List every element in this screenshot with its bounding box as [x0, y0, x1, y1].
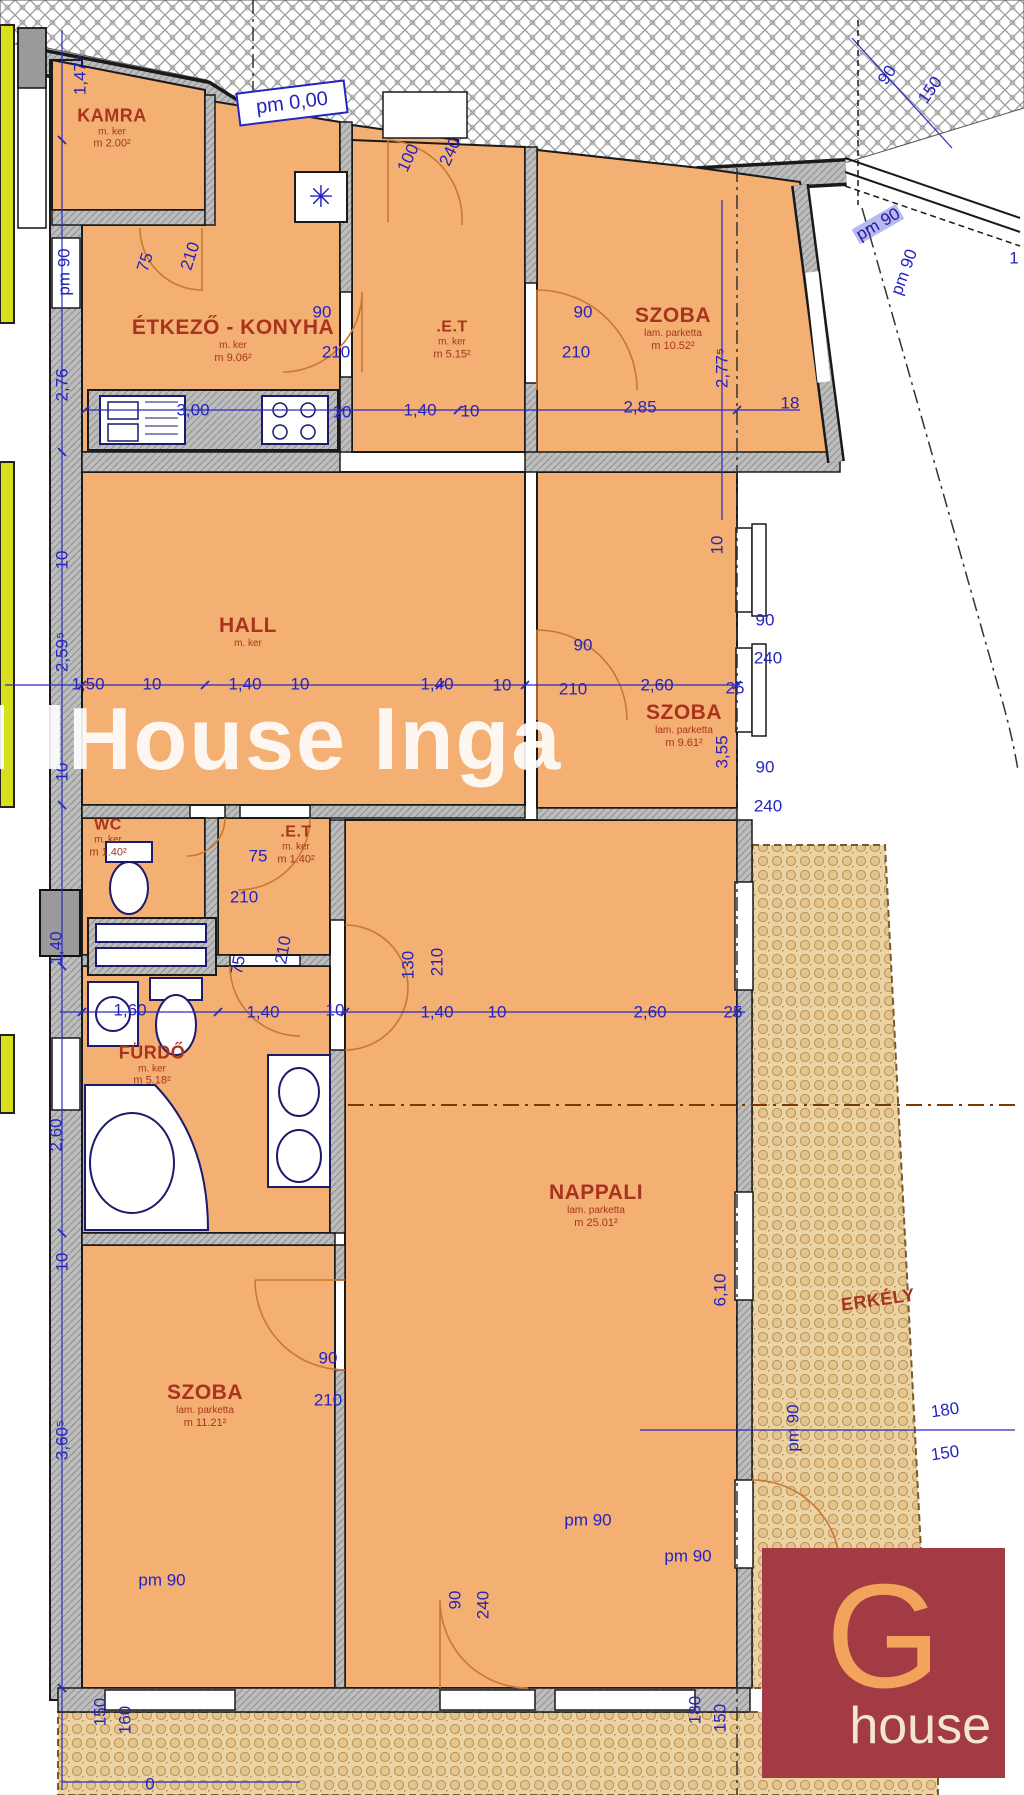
- room-name: SZOBA: [167, 1381, 243, 1405]
- dimension-label: 2,59⁵: [54, 632, 71, 672]
- dimension-label: 0: [145, 1776, 154, 1793]
- dimension-label: 2,76: [54, 368, 71, 401]
- room-area: m 5.18²: [119, 1075, 186, 1088]
- dimension-label: 180: [930, 1400, 960, 1421]
- room-name: ERKÉLY: [840, 1285, 917, 1316]
- dimension-label: 210: [272, 935, 294, 966]
- dimension-label: 210: [559, 681, 587, 698]
- logo-word: house: [849, 1700, 1005, 1752]
- room-label-hall: HALLm. ker: [219, 614, 277, 650]
- room-label-erkely: ERKÉLY: [840, 1285, 917, 1316]
- dimension-label: 90: [447, 1591, 464, 1610]
- dimension-label: 240: [436, 136, 463, 169]
- dimension-label: 240: [754, 650, 782, 667]
- dimension-label: 130: [400, 951, 417, 979]
- dimension-label: 1,47⁵: [72, 55, 89, 95]
- dimension-label: 75: [134, 250, 156, 273]
- dimension-label: 100: [394, 142, 421, 175]
- dimension-label: 3,00: [176, 402, 209, 419]
- room-floor-type: m. ker: [277, 842, 314, 854]
- dimension-label: 3,60⁵: [54, 1420, 71, 1460]
- agency-logo: G house: [762, 1548, 1005, 1778]
- dimension-label: 2,60: [48, 1118, 65, 1151]
- dimension-label: pm 90: [564, 1512, 611, 1529]
- dimension-label: pm 90: [888, 247, 920, 297]
- dimension-label: 2,85: [623, 399, 656, 416]
- room-name: SZOBA: [646, 701, 722, 725]
- dimension-label: 90: [319, 1350, 338, 1367]
- room-name: SZOBA: [635, 304, 711, 328]
- dimension-label: 6,10: [712, 1273, 729, 1306]
- room-floor-type: m. ker: [119, 1063, 186, 1075]
- dimension-label: 150: [92, 1698, 109, 1726]
- room-name: KAMRA: [77, 106, 147, 127]
- room-floor-type: m. ker: [77, 126, 147, 138]
- room-area: m 9.61²: [646, 737, 722, 750]
- dimension-label: 2,77⁵: [714, 348, 731, 388]
- dimension-label: 25: [726, 680, 745, 697]
- dimension-label: 10: [709, 536, 726, 555]
- dimension-label: 90: [574, 637, 593, 654]
- dimension-label: 2,60: [640, 677, 673, 694]
- dimension-label: 10: [461, 403, 480, 420]
- dimension-label: 1,40: [403, 402, 436, 419]
- dimension-label: 150: [930, 1443, 960, 1464]
- dimension-label: pm 90: [852, 204, 905, 244]
- dimension-label: 160: [117, 1706, 134, 1734]
- dimension-label: 150: [712, 1704, 729, 1732]
- labels-layer: 1,47⁵pm 902,76102,59⁵101,402,60103,60⁵07…: [0, 0, 1024, 1795]
- dimension-label: 210: [178, 240, 203, 272]
- room-floor-type: m. ker: [219, 638, 277, 650]
- room-floor-type: lam. parketta: [549, 1205, 643, 1217]
- dimension-label: 90: [756, 759, 775, 776]
- room-label-szoba-also: SZOBAlam. parkettam 11.21²: [167, 1381, 243, 1429]
- room-label-et-kozep: .E.Tm. kerm 1.40²: [277, 824, 314, 867]
- dimension-label: 1,40: [246, 1004, 279, 1021]
- dimension-label: pm 90: [785, 1404, 802, 1451]
- dimension-label: 75: [228, 954, 248, 976]
- room-label-furdo: FÜRDŐm. kerm 5.18²: [119, 1043, 186, 1088]
- dimension-label: 2,60: [633, 1004, 666, 1021]
- room-floor-type: m. ker: [433, 337, 470, 349]
- room-area: m 5.15²: [433, 349, 470, 362]
- room-label-nappali: NAPPALIlam. parkettam 25.01²: [549, 1181, 643, 1229]
- dimension-label: 210: [314, 1392, 342, 1409]
- logo-initial: G: [826, 1574, 941, 1700]
- room-name: NAPPALI: [549, 1181, 643, 1205]
- dimension-label: 90: [574, 304, 593, 321]
- room-area: m 25.01²: [549, 1217, 643, 1230]
- room-floor-type: lam. parketta: [646, 725, 722, 737]
- room-label-kamra: KAMRAm. kerm 2.00²: [77, 106, 147, 151]
- floorplan-canvas: ✳: [0, 0, 1024, 1795]
- dimension-label: 210: [429, 948, 446, 976]
- dimension-label: 210: [562, 344, 590, 361]
- room-area: m 2.00²: [77, 138, 147, 151]
- dimension-label: 10: [54, 551, 71, 570]
- room-name: HALL: [219, 614, 277, 638]
- room-area: m 9.06²: [132, 352, 334, 365]
- dimension-label: 1,40: [48, 931, 65, 964]
- room-floor-type: lam. parketta: [635, 328, 711, 340]
- dimension-label: pm 90: [138, 1572, 185, 1589]
- room-name: FÜRDŐ: [119, 1043, 186, 1064]
- dimension-label: 18: [781, 395, 800, 412]
- room-label-wc: WCm. kerm 1.40²: [89, 817, 126, 860]
- room-area: m 11.21²: [167, 1417, 243, 1430]
- room-name: .E.T: [433, 319, 470, 337]
- dimension-label: 1: [1009, 250, 1018, 267]
- dimension-label: 10: [326, 1002, 345, 1019]
- dimension-label: 1,60: [113, 1002, 146, 1019]
- dimension-label: 75: [249, 848, 268, 865]
- dimension-label: 240: [475, 1591, 492, 1619]
- dimension-label: 180: [687, 1696, 704, 1724]
- dimension-label: 10: [54, 1253, 71, 1272]
- dimension-label: pm 90: [664, 1548, 711, 1565]
- room-label-szoba-kozep: SZOBAlam. parkettam 9.61²: [646, 701, 722, 749]
- room-name: WC: [89, 817, 126, 835]
- room-name: ÉTKEZŐ - KONYHA: [132, 316, 334, 340]
- room-label-et-felso: .E.Tm. kerm 5.15²: [433, 319, 470, 362]
- room-label-etkezo-konyha: ÉTKEZŐ - KONYHAm. kerm 9.06²: [132, 316, 334, 364]
- dimension-label: 10: [333, 404, 352, 421]
- watermark: oldHouse Inga: [0, 688, 562, 790]
- room-floor-type: lam. parketta: [167, 1405, 243, 1417]
- dimension-label: 210: [230, 889, 258, 906]
- room-area: m 1.40²: [89, 847, 126, 860]
- dimension-label: 240: [754, 798, 782, 815]
- room-name: .E.T: [277, 824, 314, 842]
- room-area: m 10.52²: [635, 340, 711, 353]
- dimension-label: 1,40: [420, 1004, 453, 1021]
- room-floor-type: m. ker: [89, 835, 126, 847]
- dimension-label: pm 90: [56, 248, 73, 295]
- room-label-szoba-jobb-felso: SZOBAlam. parkettam 10.52²: [635, 304, 711, 352]
- room-area: m 1.40²: [277, 854, 314, 867]
- dimension-label: 90: [875, 62, 900, 87]
- room-floor-type: m. ker: [132, 340, 334, 352]
- dimension-label: 150: [915, 74, 945, 107]
- dimension-label: 25: [724, 1004, 743, 1021]
- dimension-label: 10: [488, 1004, 507, 1021]
- dimension-label: 90: [756, 612, 775, 629]
